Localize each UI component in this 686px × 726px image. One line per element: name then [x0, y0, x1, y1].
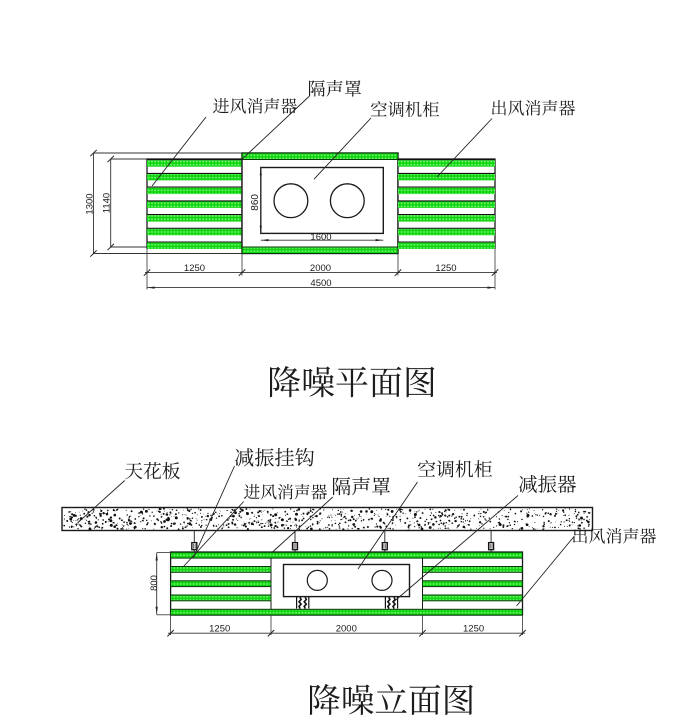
svg-text:1300: 1300	[85, 193, 96, 214]
svg-text:4500: 4500	[310, 278, 331, 289]
svg-text:1250: 1250	[184, 263, 205, 274]
svg-text:2000: 2000	[336, 623, 357, 634]
svg-text:1250: 1250	[435, 263, 456, 274]
svg-text:1140: 1140	[102, 193, 113, 213]
svg-text:2000: 2000	[310, 263, 331, 274]
svg-text:860: 860	[250, 194, 261, 211]
svg-text:1250: 1250	[463, 623, 484, 634]
svg-text:1600: 1600	[310, 232, 331, 243]
svg-text:800: 800	[149, 575, 160, 591]
svg-text:1250: 1250	[209, 623, 230, 634]
